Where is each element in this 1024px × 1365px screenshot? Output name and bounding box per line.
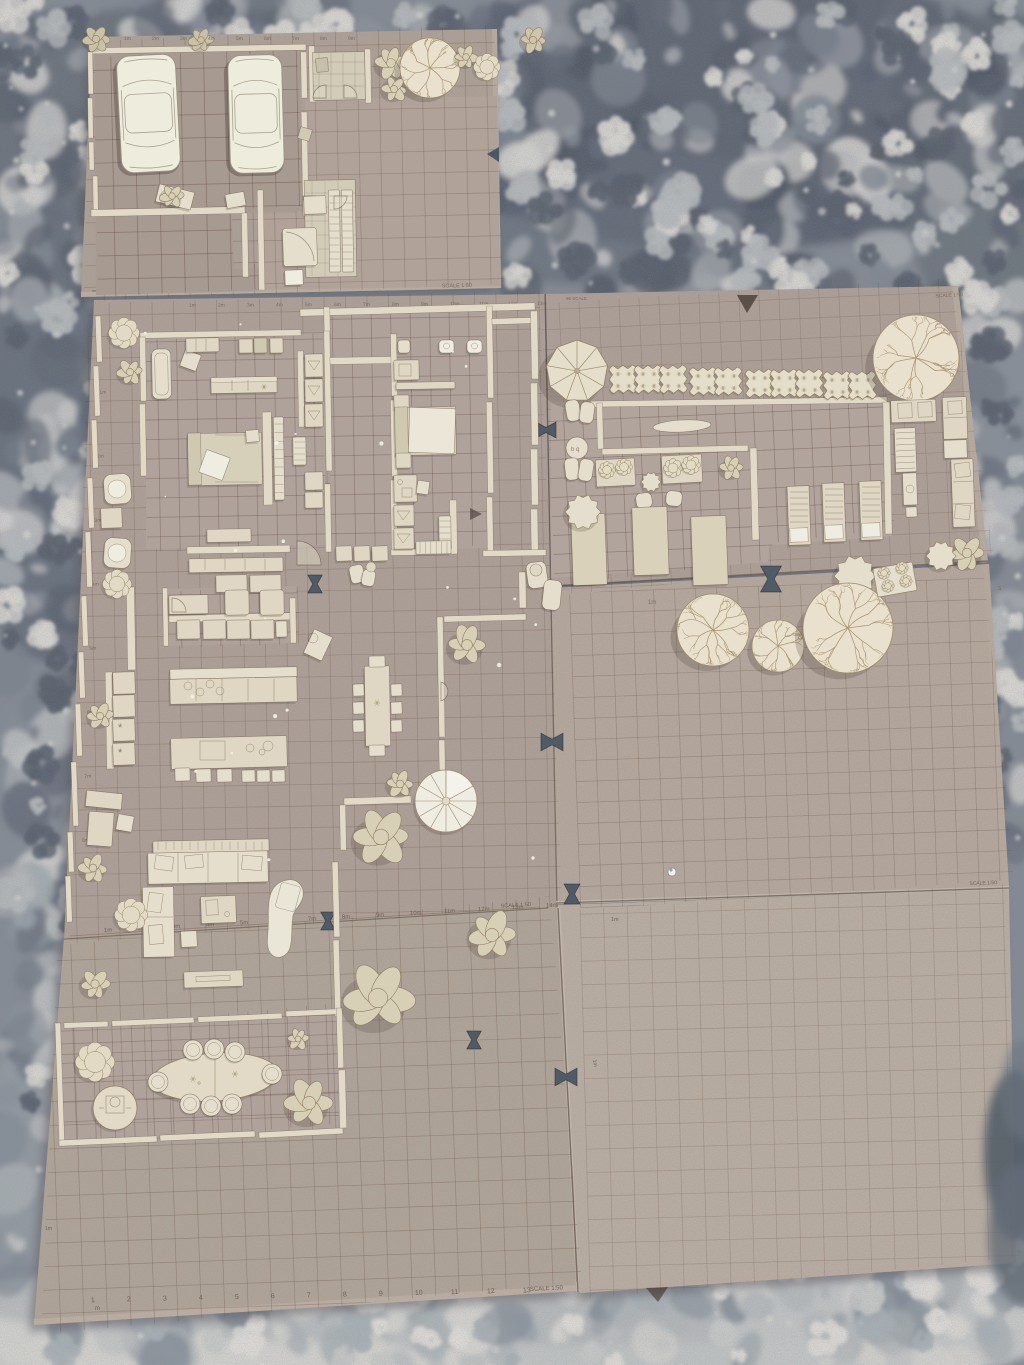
svg-text:9: 9 [379,1291,383,1298]
svg-text:5m: 5m [240,920,249,926]
svg-text:7m: 7m [292,36,299,42]
svg-text:4: 4 [199,1295,203,1302]
svg-text:1m: 1m [99,390,106,396]
svg-text:7m: 7m [308,916,317,922]
svg-text:5: 5 [235,1294,239,1301]
svg-text:9m: 9m [348,36,355,42]
svg-text:1m: 1m [648,600,656,606]
svg-text:14m: 14m [546,903,558,910]
svg-text:9m: 9m [376,912,385,918]
svg-text:6: 6 [271,1293,275,1300]
svg-text:2: 2 [127,1296,131,1303]
svg-text:1m: 1m [611,917,619,923]
svg-text:1: 1 [91,1297,95,1304]
svg-text:7m: 7m [363,302,370,308]
svg-text:1m: 1m [45,1226,52,1232]
svg-text:SCALE 1:50: SCALE 1:50 [442,283,472,290]
svg-text:7m: 7m [84,774,91,780]
svg-text:2m: 2m [218,303,225,309]
svg-text:3m: 3m [247,302,254,308]
svg-text:5m: 5m [305,302,312,308]
svg-text:4m: 4m [92,582,99,588]
svg-text:1m: 1m [189,303,196,309]
svg-text:96 SCALE: 96 SCALE [566,296,587,301]
svg-text:*: * [118,722,123,734]
svg-text:2m: 2m [152,36,159,42]
svg-text:8m: 8m [342,914,351,920]
svg-text:3m: 3m [180,36,187,42]
svg-text:12: 12 [487,1288,495,1295]
svg-text:7: 7 [307,1292,311,1299]
svg-text:b q: b q [571,447,579,453]
svg-text:6m: 6m [264,36,271,42]
svg-text:m: m [95,1306,100,1312]
svg-text:*: * [118,747,123,759]
svg-text:10m: 10m [410,910,422,917]
svg-text:12m: 12m [478,907,490,914]
svg-text:8m: 8m [320,36,327,42]
svg-text:6m: 6m [334,302,341,308]
svg-text:5m: 5m [236,36,243,42]
svg-text:3: 3 [163,1295,167,1302]
svg-text:11m: 11m [444,909,456,916]
svg-text:13m: 13m [537,301,547,307]
svg-text:1m: 1m [104,928,113,934]
svg-text:11: 11 [451,1289,459,1296]
svg-text:10: 10 [415,1290,423,1297]
svg-text:1m: 1m [124,36,131,42]
svg-text:4m: 4m [276,302,283,308]
svg-text:1m: 1m [591,1059,598,1067]
svg-text:5m: 5m [89,646,96,652]
svg-text:8: 8 [343,1291,347,1298]
svg-text:SCALE 1:50: SCALE 1:50 [969,880,997,887]
svg-text:4m: 4m [208,36,215,42]
